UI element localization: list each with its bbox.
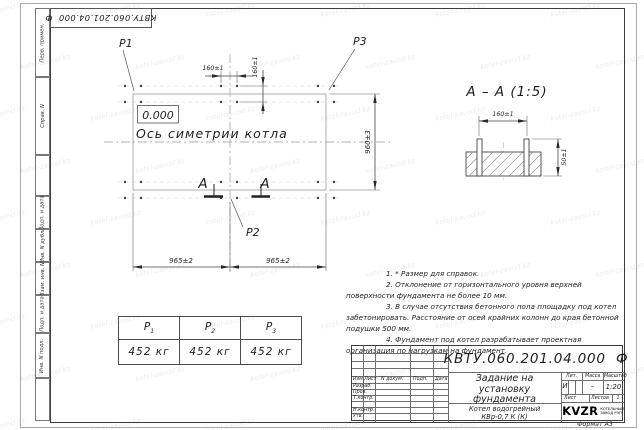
lit-value: И xyxy=(562,382,568,390)
role-nkontr: Н.контр. xyxy=(353,408,374,413)
svg-text:960±3: 960±3 xyxy=(364,130,372,154)
scale-label: Масштаб xyxy=(604,374,627,379)
company-logo: KVZR КОТЕЛЬНЫЙ ЗАВОД РЭП xyxy=(562,402,622,420)
dim-965-pair: 965±2 965±2 xyxy=(133,193,326,271)
rev-header-podp: Подп. xyxy=(413,377,428,382)
section-view: А – А (1:5) 160±1 xyxy=(465,84,568,182)
svg-text:965±2: 965±2 xyxy=(169,257,193,265)
section-cut-marks: А А xyxy=(197,176,270,197)
level-mark: 0.000 xyxy=(142,109,174,122)
rev-header-data: Дата xyxy=(435,377,447,382)
drawing-title: Задание на установку фундамента xyxy=(450,373,559,404)
sheets-value: 1 xyxy=(612,396,624,401)
note-2: 2. Отклонение от горизонтального уровня … xyxy=(346,279,625,301)
p3-label: Р3 xyxy=(353,35,367,48)
load-p1-value: 452 кг xyxy=(119,340,180,365)
sheet-label: Лист xyxy=(564,396,576,401)
role-tkontr: Т.контр. xyxy=(353,396,374,401)
p2-label: Р2 xyxy=(246,226,260,239)
loads-table: Р1 Р2 Р3 452 кг 452 кг 452 кг xyxy=(118,316,302,365)
dim-section-160: 160±1 xyxy=(479,111,527,136)
dim-160-vertical: 160±1 xyxy=(240,56,267,114)
role-razrab: Разраб. xyxy=(353,384,372,389)
load-p3-value: 452 кг xyxy=(241,340,302,365)
plan-view: Р1 Р3 Р2 0.000 Ось симетрии котла 160±1 … xyxy=(104,35,392,272)
anchor-bolt-right xyxy=(524,139,529,176)
product-name: Котел водогрейный КВр-0,7 К (К) xyxy=(450,404,559,424)
sheets-label: Листов xyxy=(591,396,609,401)
lit-label: Лит. xyxy=(566,374,577,379)
mass-label: Масса xyxy=(585,374,600,379)
company-subtitle: КОТЕЛЬНЫЙ ЗАВОД РЭП xyxy=(600,407,624,415)
load-p1-header: Р1 xyxy=(119,317,180,340)
anchor-bolt-left xyxy=(477,139,482,176)
technical-notes: 1. * Размер для справок. 2. Отклонение о… xyxy=(346,268,625,356)
rev-header-docnum: N докум. xyxy=(381,377,403,382)
p1-label: Р1 xyxy=(119,37,133,50)
mass-value: – xyxy=(582,382,603,390)
svg-text:965±2: 965±2 xyxy=(266,257,290,265)
loads-table-value-row: 452 кг 452 кг 452 кг xyxy=(119,340,302,365)
section-title: А – А (1:5) xyxy=(465,84,547,100)
section-letter-left: А xyxy=(197,176,207,192)
rev-header-izm-list: Изм.Лист xyxy=(353,377,376,382)
load-p2-value: 452 кг xyxy=(180,340,241,365)
loads-table-header-row: Р1 Р2 Р3 xyxy=(119,317,302,340)
svg-text:50±1: 50±1 xyxy=(561,148,568,165)
role-prov: Пров. xyxy=(353,390,367,395)
scale-value: 1:20 xyxy=(603,383,624,391)
doc-number: КВТУ.060.201.04.000 Ф xyxy=(450,346,622,372)
role-utv: Утв. xyxy=(353,414,363,419)
note-3: 3. В случае отсутствия бетонного пола пл… xyxy=(346,301,625,334)
svg-text:160±1: 160±1 xyxy=(492,111,513,118)
format-label: Формат А3 xyxy=(560,421,630,428)
dim-160-horizontal: 160±1 xyxy=(202,65,253,83)
note-1: 1. * Размер для справок. xyxy=(346,268,625,279)
load-p3-header: Р3 xyxy=(241,317,302,340)
svg-text:160±1: 160±1 xyxy=(202,65,223,72)
symmetry-axis-label: Ось симетрии котла xyxy=(136,126,288,141)
load-p2-header: Р2 xyxy=(180,317,241,340)
company-name: KVZR xyxy=(562,404,598,418)
title-block: Изм.Лист N докум. Подп. Дата Разраб. Про… xyxy=(351,345,623,421)
svg-text:160±1: 160±1 xyxy=(252,56,259,77)
